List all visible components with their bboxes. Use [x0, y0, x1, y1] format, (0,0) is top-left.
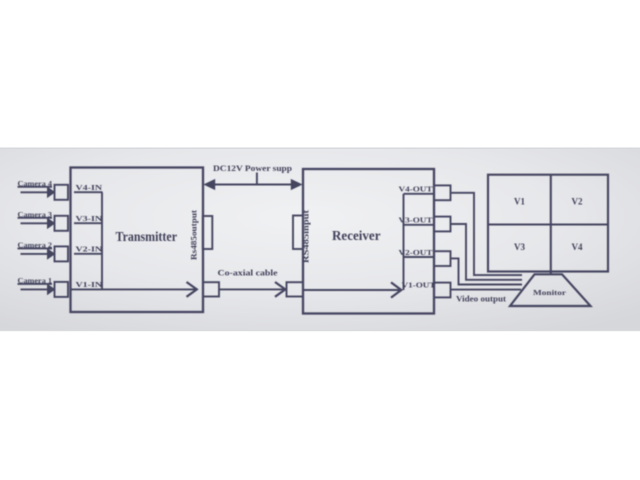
svg-text:Camera 4: Camera 4 — [18, 179, 53, 188]
svg-text:V1: V1 — [514, 197, 525, 207]
svg-text:Receiver: Receiver — [332, 228, 381, 243]
svg-text:Co-axial cable: Co-axial cable — [218, 267, 278, 277]
svg-text:Monitor: Monitor — [533, 288, 567, 297]
svg-text:Camera 3: Camera 3 — [18, 210, 53, 219]
svg-text:Camera 2: Camera 2 — [18, 241, 53, 250]
svg-text:V3-IN: V3-IN — [76, 214, 103, 223]
svg-text:V1-IN: V1-IN — [76, 280, 103, 289]
svg-text:V4-IN: V4-IN — [76, 183, 103, 192]
svg-text:RS485input: RS485input — [302, 210, 311, 263]
svg-text:Rs485output: Rs485output — [190, 210, 199, 260]
svg-text:V4: V4 — [572, 242, 583, 252]
svg-text:V3-OUT: V3-OUT — [399, 216, 433, 225]
svg-text:Video output: Video output — [456, 293, 506, 303]
svg-text:V2-OUT: V2-OUT — [399, 248, 433, 257]
svg-text:V4-OUT: V4-OUT — [399, 185, 433, 194]
svg-text:DC12V Power supp: DC12V Power supp — [213, 163, 292, 173]
svg-text:Transmitter: Transmitter — [116, 229, 178, 244]
svg-text:Camera 1: Camera 1 — [18, 276, 53, 285]
svg-text:V2-IN: V2-IN — [76, 244, 103, 253]
svg-text:V2: V2 — [572, 197, 583, 207]
svg-text:V1-OUT: V1-OUT — [402, 281, 436, 290]
svg-text:V3: V3 — [514, 242, 525, 252]
